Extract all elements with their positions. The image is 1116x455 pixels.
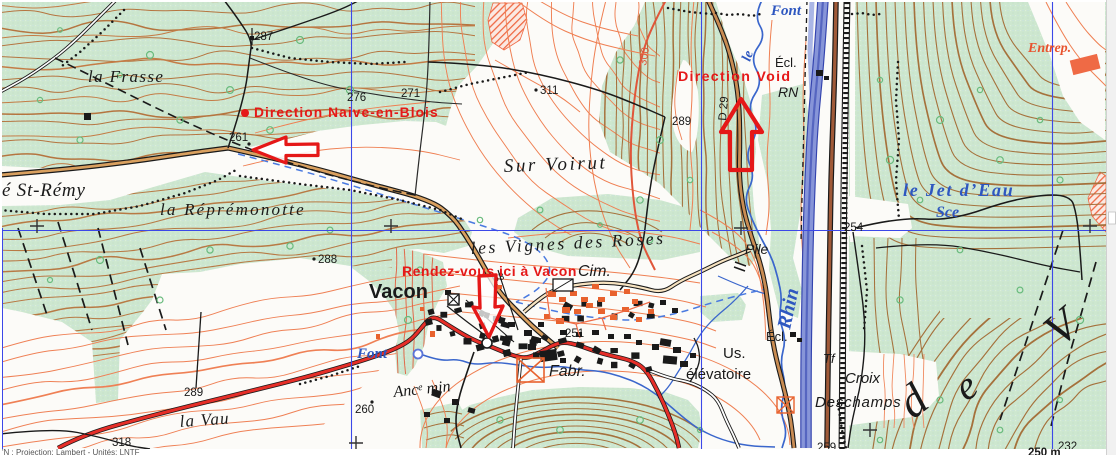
svg-text:'N : Projection: Lambert - Uni: 'N : Projection: Lambert - Unités: LNTF bbox=[2, 448, 140, 455]
svg-text:Entrep.: Entrep. bbox=[1027, 41, 1071, 56]
svg-text:élévatoire: élévatoire bbox=[686, 366, 751, 383]
svg-text:261: 261 bbox=[229, 132, 248, 144]
svg-text:Pile: Pile bbox=[745, 241, 769, 257]
svg-text:la Réprémonotte: la Réprémonotte bbox=[160, 200, 306, 219]
svg-text:289: 289 bbox=[184, 387, 203, 399]
svg-text:Écl.: Écl. bbox=[775, 55, 797, 70]
svg-text:288: 288 bbox=[318, 254, 337, 266]
svg-text:Direction Naive-en-Blois: Direction Naive-en-Blois bbox=[254, 105, 439, 120]
svg-text:la Vau: la Vau bbox=[179, 409, 230, 431]
svg-text:287: 287 bbox=[254, 31, 273, 43]
svg-text:Direction Void: Direction Void bbox=[678, 69, 791, 85]
svg-text:289: 289 bbox=[672, 116, 691, 128]
svg-text:RN: RN bbox=[778, 84, 799, 100]
svg-text:Croix: Croix bbox=[845, 370, 881, 387]
svg-text:Us.: Us. bbox=[723, 345, 746, 362]
svg-text:250 m: 250 m bbox=[1028, 447, 1061, 455]
svg-text:Sce: Sce bbox=[936, 204, 959, 221]
svg-text:é St-Rémy: é St-Rémy bbox=[2, 180, 86, 201]
svg-text:271: 271 bbox=[401, 88, 420, 100]
svg-text:311: 311 bbox=[540, 85, 558, 97]
svg-text:276: 276 bbox=[347, 92, 366, 104]
svg-text:Tf: Tf bbox=[823, 351, 836, 366]
svg-text:254: 254 bbox=[844, 222, 864, 234]
svg-text:260: 260 bbox=[355, 404, 374, 416]
svg-text:Fabr.: Fabr. bbox=[549, 363, 586, 380]
svg-text:la Frasse: la Frasse bbox=[88, 67, 164, 86]
svg-text:le Jet d’Eau: le Jet d’Eau bbox=[903, 180, 1015, 200]
svg-text:251: 251 bbox=[565, 328, 584, 340]
svg-text:Cim.: Cim. bbox=[578, 263, 611, 280]
svg-text:Vacon: Vacon bbox=[369, 281, 428, 303]
svg-text:Écl.: Écl. bbox=[766, 329, 788, 344]
svg-text:Font: Font bbox=[356, 346, 388, 362]
svg-text:Sur Voirut: Sur Voirut bbox=[503, 152, 607, 177]
svg-text:Deschamps: Deschamps bbox=[815, 394, 901, 411]
svg-text:Font: Font bbox=[770, 3, 802, 19]
